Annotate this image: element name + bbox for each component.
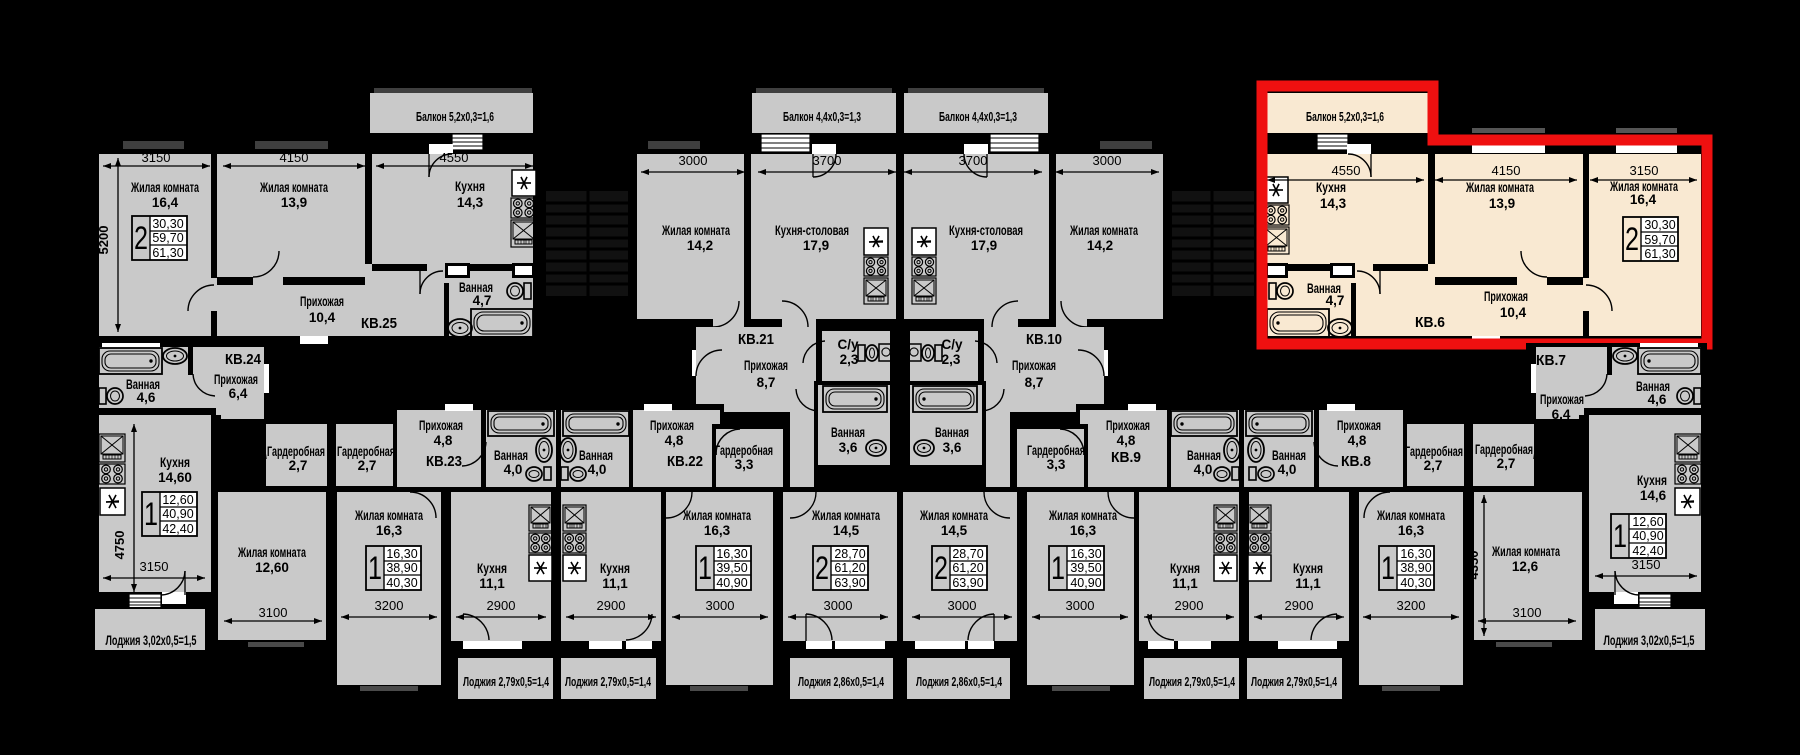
svg-text:Жилая комната: Жилая комната [661,223,730,238]
svg-text:2,7: 2,7 [1497,456,1516,471]
svg-text:Жилая комната: Жилая комната [130,180,199,195]
svg-text:59,70: 59,70 [152,231,183,245]
svg-text:КВ.23: КВ.23 [426,453,462,470]
svg-text:3100: 3100 [1513,605,1542,620]
svg-text:КВ.7: КВ.7 [1536,352,1566,369]
svg-text:28,70: 28,70 [952,547,983,561]
svg-text:3150: 3150 [1630,163,1659,178]
svg-text:Прихожая: Прихожая [419,418,463,433]
svg-text:Жилая комната: Жилая комната [1069,223,1138,238]
svg-text:63,90: 63,90 [834,576,865,590]
svg-text:59,70: 59,70 [1644,233,1675,247]
svg-text:Кухня: Кухня [1170,561,1200,576]
svg-text:Лоджия 2,79х0,5=1,4: Лоджия 2,79х0,5=1,4 [565,674,652,689]
svg-text:Лоджия 2,86х0,5=1,4: Лоджия 2,86х0,5=1,4 [916,674,1003,689]
svg-text:Прихожая: Прихожая [1106,418,1150,433]
svg-text:4550: 4550 [440,150,469,165]
svg-text:16,30: 16,30 [386,547,417,561]
svg-text:3000: 3000 [1093,153,1122,168]
svg-text:16,4: 16,4 [1630,192,1657,207]
svg-text:4150: 4150 [1492,163,1521,178]
svg-text:14,3: 14,3 [1320,196,1347,211]
svg-text:Жилая комната: Жилая комната [1491,544,1560,559]
svg-text:Лоджия 3,02х0,5=1,5: Лоджия 3,02х0,5=1,5 [106,633,197,648]
svg-text:Прихожая: Прихожая [650,418,694,433]
svg-text:Жилая комната: Жилая комната [682,508,751,523]
svg-text:12,60: 12,60 [255,560,289,575]
svg-text:КВ.24: КВ.24 [225,351,262,368]
svg-text:10,4: 10,4 [309,310,336,325]
svg-text:17,9: 17,9 [803,238,829,253]
svg-text:16,3: 16,3 [1398,523,1425,538]
svg-text:2,3: 2,3 [942,352,961,367]
svg-text:Кухня: Кухня [160,455,190,470]
svg-text:5200: 5200 [96,226,111,255]
svg-text:3000: 3000 [948,598,977,613]
svg-text:8,7: 8,7 [1025,375,1044,390]
svg-text:38,90: 38,90 [386,561,417,575]
svg-text:3000: 3000 [706,598,735,613]
svg-text:3700: 3700 [813,153,842,168]
svg-text:14,6: 14,6 [1640,488,1667,503]
svg-text:3150: 3150 [142,150,171,165]
svg-text:28,70: 28,70 [834,547,865,561]
svg-text:4,0: 4,0 [1278,462,1297,477]
svg-text:39,50: 39,50 [1070,561,1101,575]
svg-text:3700: 3700 [959,153,988,168]
svg-text:40,30: 40,30 [1400,576,1431,590]
svg-text:30,30: 30,30 [1644,218,1675,232]
svg-text:Прихожая: Прихожая [744,358,788,373]
svg-text:16,3: 16,3 [1070,523,1097,538]
svg-text:Лоджия 3,02х0,5=1,5: Лоджия 3,02х0,5=1,5 [1604,633,1695,648]
svg-text:42,40: 42,40 [1632,544,1663,558]
svg-text:3000: 3000 [679,153,708,168]
svg-text:Жилая комната: Жилая комната [1048,508,1117,523]
svg-text:Жилая комната: Жилая комната [811,508,880,523]
svg-text:61,30: 61,30 [152,246,183,260]
svg-text:61,20: 61,20 [952,561,983,575]
svg-text:Жилая комната: Жилая комната [259,180,328,195]
svg-text:3200: 3200 [375,598,404,613]
svg-text:КВ.21: КВ.21 [738,331,774,348]
svg-text:4750: 4750 [112,531,127,560]
svg-text:30,30: 30,30 [152,217,183,231]
svg-text:4,7: 4,7 [1326,293,1345,308]
svg-text:Кухня: Кухня [1637,473,1667,488]
svg-text:4,0: 4,0 [1194,462,1213,477]
svg-text:КВ.8: КВ.8 [1341,453,1371,470]
svg-text:С/у: С/у [941,337,963,352]
svg-text:1: 1 [144,496,158,532]
svg-text:16,30: 16,30 [1400,547,1431,561]
svg-text:Балкон 4,4х0,3=1,3: Балкон 4,4х0,3=1,3 [783,109,861,124]
svg-text:Кухня-столовая: Кухня-столовая [775,223,849,238]
svg-text:2,3: 2,3 [840,352,859,367]
svg-text:4550: 4550 [1332,163,1361,178]
svg-text:10,4: 10,4 [1500,305,1527,320]
svg-text:12,6: 12,6 [1512,559,1539,574]
svg-text:4,0: 4,0 [504,462,523,477]
svg-text:3200: 3200 [1397,598,1426,613]
svg-text:6,4: 6,4 [1552,407,1571,422]
svg-text:4,8: 4,8 [1348,433,1367,448]
svg-text:КВ.22: КВ.22 [667,453,703,470]
svg-text:Жилая комната: Жилая комната [1465,180,1534,195]
svg-text:3150: 3150 [140,559,169,574]
svg-text:КВ.6: КВ.6 [1415,314,1445,331]
svg-text:1: 1 [368,550,382,586]
svg-text:Кухня: Кухня [1316,180,1346,195]
svg-text:Гардеробная: Гардеробная [267,444,325,459]
svg-text:4,8: 4,8 [665,433,684,448]
svg-text:1: 1 [1381,550,1395,586]
svg-text:Гардеробная: Гардеробная [337,444,395,459]
svg-text:14,5: 14,5 [833,523,860,538]
svg-text:14,2: 14,2 [1087,238,1113,253]
svg-text:1: 1 [1051,550,1065,586]
svg-text:4350: 4350 [1466,551,1481,580]
svg-text:Балкон 5,2х0,3=1,6: Балкон 5,2х0,3=1,6 [1306,109,1384,124]
svg-text:63,90: 63,90 [952,576,983,590]
svg-text:1: 1 [698,550,712,586]
svg-text:3000: 3000 [824,598,853,613]
svg-text:4,0: 4,0 [588,462,607,477]
svg-text:КВ.10: КВ.10 [1026,331,1062,348]
svg-text:Лоджия 2,79х0,5=1,4: Лоджия 2,79х0,5=1,4 [463,674,550,689]
svg-text:Гардеробная: Гардеробная [715,443,773,458]
svg-text:4,7: 4,7 [473,293,492,308]
svg-text:Балкон 5,2х0,3=1,6: Балкон 5,2х0,3=1,6 [416,109,494,124]
svg-text:Гардеробная: Гардеробная [1405,444,1463,459]
svg-text:14,5: 14,5 [941,523,968,538]
svg-text:Кухня: Кухня [1293,561,1323,576]
svg-text:3150: 3150 [1632,557,1661,572]
svg-text:2,7: 2,7 [358,458,377,473]
svg-text:Прихожая: Прихожая [1337,418,1381,433]
svg-text:11,1: 11,1 [1172,576,1198,591]
svg-text:Прихожая: Прихожая [300,294,344,309]
svg-text:Прихожая: Прихожая [1540,392,1584,407]
svg-text:Ванная: Ванная [579,448,613,463]
svg-text:4,8: 4,8 [434,433,453,448]
svg-text:Ванная: Ванная [494,448,528,463]
svg-text:40,90: 40,90 [1632,529,1663,543]
svg-text:16,3: 16,3 [376,523,403,538]
svg-text:3,6: 3,6 [839,440,858,455]
svg-text:Лоджия 2,86х0,5=1,4: Лоджия 2,86х0,5=1,4 [798,674,885,689]
svg-text:Ванная: Ванная [1272,448,1306,463]
svg-text:14,2: 14,2 [687,238,713,253]
svg-text:Балкон 4,4х0,3=1,3: Балкон 4,4х0,3=1,3 [939,109,1017,124]
svg-text:12,60: 12,60 [162,493,193,507]
svg-text:40,30: 40,30 [386,576,417,590]
svg-text:Лоджия 2,79х0,5=1,4: Лоджия 2,79х0,5=1,4 [1149,674,1236,689]
svg-text:Жилая комната: Жилая комната [919,508,988,523]
svg-text:4150: 4150 [280,150,309,165]
svg-text:Ванная: Ванная [1187,448,1221,463]
svg-text:4,8: 4,8 [1117,433,1136,448]
svg-text:Ванная: Ванная [831,425,865,440]
svg-text:2900: 2900 [1175,598,1204,613]
svg-text:2: 2 [1625,221,1639,257]
svg-text:2900: 2900 [597,598,626,613]
svg-text:1: 1 [1613,518,1627,554]
svg-text:11,1: 11,1 [479,576,505,591]
svg-text:Гардеробная: Гардеробная [1027,443,1085,458]
svg-text:Кухня: Кухня [455,179,485,194]
svg-text:2: 2 [934,550,948,586]
svg-text:2,7: 2,7 [289,458,308,473]
svg-text:Кухня: Кухня [600,561,630,576]
svg-text:16,30: 16,30 [716,547,747,561]
svg-text:61,30: 61,30 [1644,247,1675,261]
svg-text:12,60: 12,60 [1632,515,1663,529]
svg-text:13,9: 13,9 [281,195,307,210]
svg-text:16,4: 16,4 [152,195,179,210]
svg-text:42,40: 42,40 [162,522,193,536]
svg-text:С/у: С/у [837,337,859,352]
svg-text:2: 2 [134,220,148,256]
svg-text:11,1: 11,1 [1295,576,1321,591]
svg-text:Прихожая: Прихожая [1012,358,1056,373]
svg-text:8,7: 8,7 [757,375,776,390]
svg-text:Кухня-столовая: Кухня-столовая [949,223,1023,238]
svg-text:Лоджия 2,79х0,5=1,4: Лоджия 2,79х0,5=1,4 [1251,674,1338,689]
svg-text:40,90: 40,90 [1070,576,1101,590]
svg-text:Жилая комната: Жилая комната [1376,508,1445,523]
svg-text:2900: 2900 [1285,598,1314,613]
svg-text:Гардеробная: Гардеробная [1475,442,1533,457]
svg-text:Кухня: Кухня [477,561,507,576]
svg-text:4,6: 4,6 [1648,392,1667,407]
svg-text:4,6: 4,6 [137,390,156,405]
svg-text:39,50: 39,50 [716,561,747,575]
svg-text:КВ.9: КВ.9 [1111,449,1141,466]
svg-text:2,7: 2,7 [1424,458,1443,473]
svg-text:61,20: 61,20 [834,561,865,575]
svg-text:3,6: 3,6 [943,440,962,455]
svg-text:6,4: 6,4 [229,386,248,401]
svg-text:2: 2 [815,550,829,586]
svg-text:40,90: 40,90 [716,576,747,590]
svg-text:Жилая комната: Жилая комната [354,508,423,523]
svg-text:11,1: 11,1 [602,576,628,591]
svg-text:13,9: 13,9 [1489,196,1515,211]
svg-text:Прихожая: Прихожая [1484,289,1528,304]
svg-text:17,9: 17,9 [971,238,997,253]
svg-text:16,3: 16,3 [704,523,731,538]
svg-text:3,3: 3,3 [735,457,754,472]
svg-text:Ванная: Ванная [935,425,969,440]
svg-text:14,60: 14,60 [158,470,192,485]
svg-text:16,30: 16,30 [1070,547,1101,561]
svg-text:14,3: 14,3 [457,195,484,210]
svg-text:КВ.25: КВ.25 [361,315,397,332]
svg-text:2900: 2900 [487,598,516,613]
svg-text:38,90: 38,90 [1400,561,1431,575]
svg-text:40,90: 40,90 [162,507,193,521]
svg-text:Прихожая: Прихожая [214,372,258,387]
svg-text:3000: 3000 [1066,598,1095,613]
svg-text:3,3: 3,3 [1047,457,1066,472]
svg-text:Жилая комната: Жилая комната [237,545,306,560]
svg-text:3100: 3100 [259,605,288,620]
